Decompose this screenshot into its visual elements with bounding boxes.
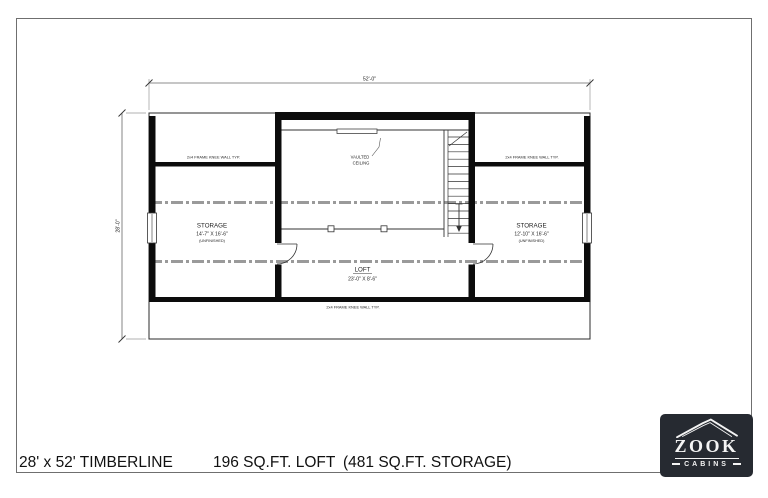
dimension-top: 52'-0" (146, 77, 594, 111)
knee-wall-note-bottom: 2x4 FRAME KNEE WALL TYP. (326, 305, 379, 310)
exterior-wall-left-lower (149, 243, 156, 302)
knee-wall-bottom (149, 297, 590, 302)
stair-direction-arrow (456, 204, 463, 232)
zook-cabins-logo: ZOOK CABINS (660, 414, 753, 477)
logo-brand-text: ZOOK (674, 437, 738, 455)
floor-plan-drawing: 52'-0" 28'-0" (0, 0, 768, 498)
storage-area-text: (481 SQ.FT. STORAGE) (343, 454, 512, 472)
loft-wall-left-upper (275, 120, 282, 243)
staircase (444, 130, 469, 237)
logo-dash-left (672, 463, 680, 465)
storage-right-note: (UNFINISHED) (519, 239, 545, 243)
railing-post (328, 226, 334, 232)
vaulted-leader-line (372, 138, 381, 156)
storage-left-size: 14'-7" X 16'-6" (196, 232, 228, 238)
plan-sheet: 52'-0" 28'-0" (0, 0, 768, 498)
vaulted-ceiling-label-2: CEILING (353, 161, 370, 166)
logo-divider (675, 458, 739, 459)
loft-area-text: 196 SQ.FT. LOFT (213, 454, 335, 472)
logo-dash-right (733, 463, 741, 465)
loft-wall-top (275, 112, 475, 120)
cabin-roof-icon (674, 418, 740, 438)
loft-wall-right-upper (469, 120, 476, 243)
loft-wall-right-lower (469, 265, 476, 298)
gable-window (337, 129, 377, 134)
loft-size: 23'-0" X 8'-6" (348, 277, 377, 283)
storage-left-name: STORAGE (197, 223, 227, 230)
knee-wall-top-left (149, 162, 275, 167)
storage-right-size: 12'-10" X 16'-6" (514, 232, 549, 238)
loft-interior (282, 129, 469, 232)
model-title: 28' x 52' TIMBERLINE (19, 454, 173, 472)
storage-left-note: (UNFINISHED) (199, 239, 225, 243)
dim-height-text: 28'-0" (116, 219, 122, 232)
knee-wall-note-right: 2x4 FRAME KNEE WALL TYP. (505, 155, 558, 160)
storage-right-name: STORAGE (516, 223, 546, 230)
knee-wall-top-right (475, 162, 590, 167)
dim-width-text: 52'-0" (363, 77, 376, 83)
knee-wall-note-left: 2x4 FRAME KNEE WALL TYP. (187, 155, 240, 160)
dimension-left: 28'-0" (116, 110, 147, 343)
exterior-wall-right-lower (584, 243, 591, 302)
logo-sub-text: CABINS (684, 461, 729, 468)
vaulted-ceiling-label-1: VAULTED (351, 155, 370, 160)
loft-name: LOFT (355, 267, 371, 274)
railing-post (381, 226, 387, 232)
loft-wall-left-lower (275, 265, 282, 298)
